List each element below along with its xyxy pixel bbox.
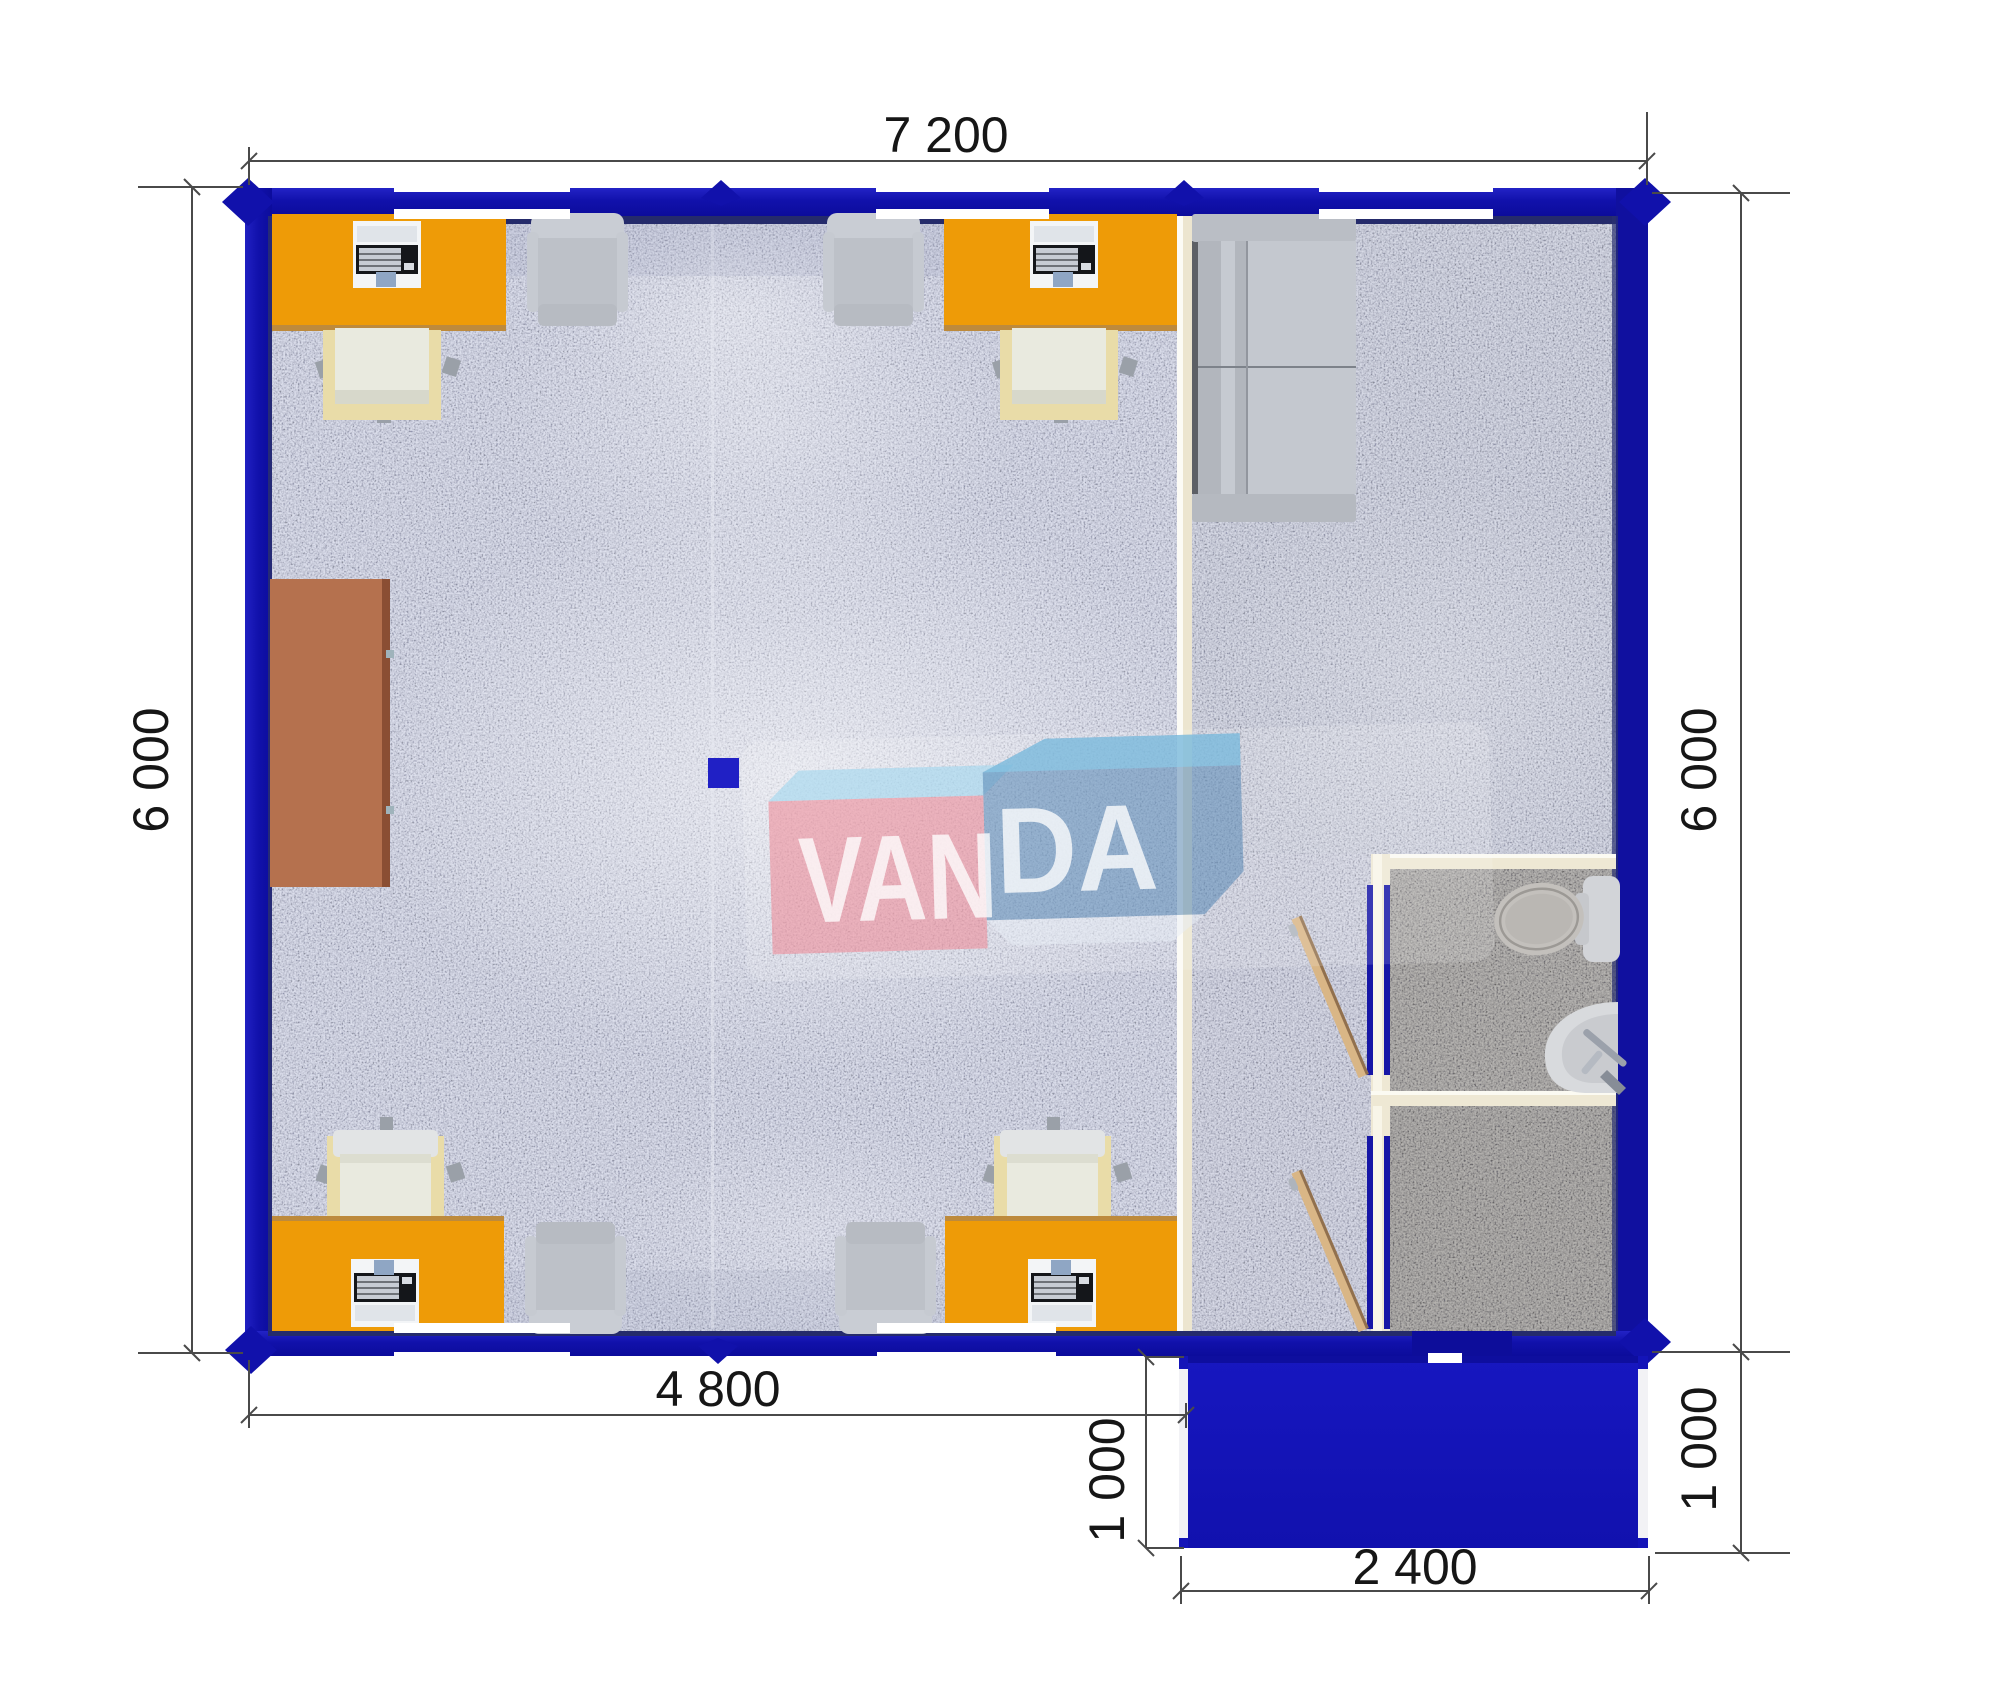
svg-text:1 000: 1 000 [1079,1417,1135,1542]
svg-text:6 000: 6 000 [123,707,179,832]
svg-text:4 800: 4 800 [655,1361,780,1417]
svg-text:7 200: 7 200 [883,107,1008,163]
svg-text:1 000: 1 000 [1671,1386,1727,1511]
svg-text:VAN: VAN [797,808,1000,949]
svg-text:DA: DA [994,778,1160,919]
svg-text:2 400: 2 400 [1352,1539,1477,1595]
svg-text:6 000: 6 000 [1671,707,1727,832]
